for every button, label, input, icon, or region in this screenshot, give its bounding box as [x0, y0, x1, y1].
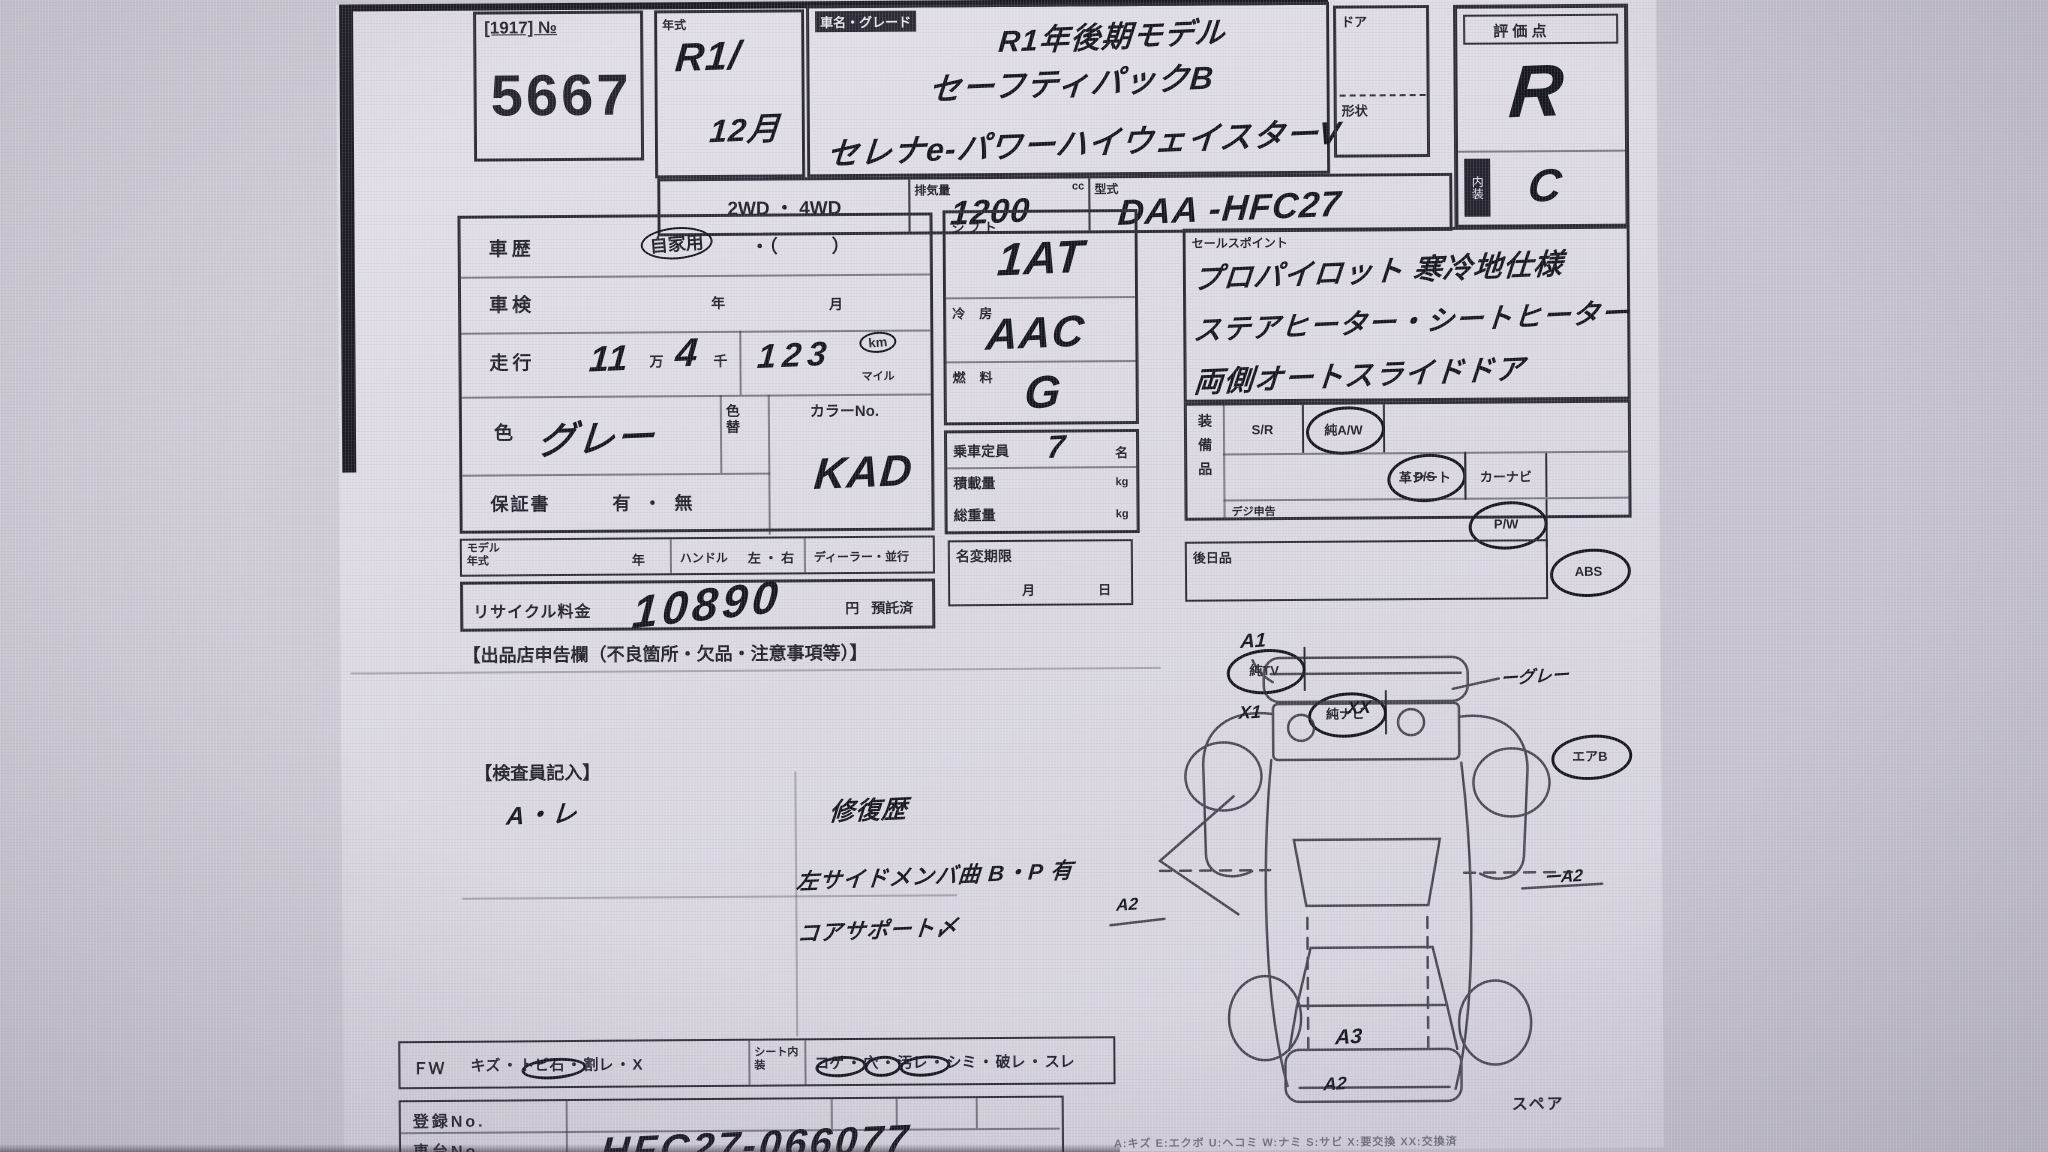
recycle-paid: 預託済	[871, 598, 913, 618]
sales-points-label: セールスポイント	[1192, 234, 1288, 252]
displacement-unit: cc	[1072, 180, 1084, 192]
damage-legend: A:キズ E:エクボ U:ヘコミ W:ナミ S:サビ X:要交換 XX:交換済	[1114, 1133, 1458, 1151]
color-value: グレー	[536, 405, 658, 465]
dealer-label: ディーラー・並行	[814, 548, 909, 566]
photo-bottom-shadow	[0, 1144, 1120, 1152]
damage-mark-xx: XX	[1346, 697, 1371, 719]
score-label: 評 価 点	[1493, 20, 1546, 41]
sales-point-line-2: ステアヒーター・シートヒーター	[1192, 291, 1632, 349]
transfer-month-unit: 月	[1022, 580, 1035, 599]
cell-divider	[976, 1098, 978, 1128]
load-unit: kg	[1115, 476, 1128, 488]
cell-divider	[739, 331, 741, 395]
shift-box: シフト 1AT 冷房 AAC 燃料 G	[942, 209, 1138, 425]
registration-label: 登録No.	[413, 1108, 486, 1133]
fw-item: 割レ	[583, 1057, 632, 1074]
seat-item: 汚レ	[897, 1054, 946, 1071]
gw-unit: kg	[1116, 508, 1129, 520]
cell-divider	[748, 1041, 750, 1085]
shift-value: 1AT	[995, 229, 1086, 287]
pax-unit: 名	[1115, 442, 1128, 461]
history-value: 自家用	[640, 225, 714, 262]
left-detail-block: 車歴 自家用 ・（ ） 車検 年 月 走行 11 万 4 千 123 km マイ…	[457, 212, 934, 533]
scan-edge-left	[339, 5, 356, 473]
color-change-label: 色替	[726, 403, 750, 435]
lot-box: [1917] № 5667	[473, 10, 644, 161]
door-label: ドア	[1341, 11, 1367, 30]
color-no-value: KAD	[812, 446, 915, 500]
inspector-note-1: 修復歴	[828, 789, 909, 828]
later-items-box: 後日品	[1185, 539, 1548, 602]
load-label: 積載量	[953, 473, 995, 493]
warranty-label: 保証書	[490, 490, 550, 516]
inspector-left-note: A・レ	[505, 794, 579, 833]
transfer-box: 名変期限 月 日	[948, 539, 1133, 606]
inspector-rule	[462, 894, 957, 899]
equipment-box: 装備品 S/R 純A/W P/S P/W ABS 純TV 純ナビ 革シート カー…	[1184, 400, 1632, 521]
model-year-unit: 年	[632, 549, 645, 568]
fw-row: ＦＷ キズトビ石割レX シート内装 コゲ穴汚レシミ破レスレ	[398, 1036, 1115, 1089]
warranty-options: 有 ・ 無	[612, 489, 696, 516]
gw-label: 総重量	[954, 505, 996, 525]
seat-item: シミ	[946, 1054, 995, 1071]
pax-value: 7	[1046, 428, 1068, 466]
mileage-label: 走行	[489, 348, 535, 375]
shape-label: 形状	[1342, 100, 1368, 119]
handle-label: ハンドル	[680, 549, 728, 566]
km-unit: km	[859, 330, 897, 354]
cell-divider	[720, 395, 723, 473]
mileage-number: 123	[756, 335, 834, 377]
later-items-label: 後日品	[1193, 547, 1232, 566]
score-label-strip: 評 価 点	[1463, 14, 1618, 45]
lot-number: 5667	[490, 62, 631, 130]
inspector-note-3: コアサポート〆	[796, 909, 960, 948]
displacement-label: 排気量	[914, 181, 950, 198]
cell-divider	[670, 539, 672, 573]
model-code-cell: 型式 DAA -HFC27	[1090, 176, 1450, 231]
row-divider	[947, 466, 1136, 469]
color-no-label: カラーNo.	[810, 400, 879, 421]
score-box: 評 価 点 R 内装 C	[1453, 4, 1630, 229]
interior-label: 内装	[1470, 176, 1484, 200]
pax-label: 乗車定員	[953, 441, 1009, 461]
seat-item: スレ	[1044, 1053, 1074, 1070]
damage-mark-x1: X1	[1238, 702, 1261, 724]
fw-item: キズ	[470, 1057, 519, 1074]
shift-label: シフト	[951, 217, 999, 236]
damage-mark-front-a2: A2	[1323, 1073, 1347, 1095]
shaken-month-unit: 月	[829, 294, 843, 314]
model-code-value: DAA -HFC27	[1116, 183, 1343, 234]
fuel-value: G	[1022, 364, 1063, 420]
cell-divider	[768, 395, 771, 535]
capacity-box: 乗車定員 7 名 積載量 kg 総重量 kg	[944, 429, 1140, 534]
row-divider	[461, 273, 930, 278]
fuel-label: 燃料	[953, 367, 1007, 386]
spare-label: スペア	[1512, 1090, 1565, 1114]
grade-line-2: セーフティパックB	[927, 53, 1216, 111]
row-divider	[462, 473, 770, 477]
recycle-value: 10890	[631, 569, 784, 639]
fw-label: ＦＷ	[412, 1055, 444, 1079]
cell-divider	[804, 1040, 806, 1084]
mileage-man: 11	[588, 337, 631, 381]
shaken-label: 車検	[489, 290, 535, 317]
seat-item: 破レ	[995, 1054, 1044, 1071]
row-divider	[462, 393, 931, 398]
model-code-label: 型式	[1094, 180, 1118, 197]
lot-tag: [1917] №	[484, 18, 557, 39]
car-damage-diagram: A1 X1 XX ーグレー A2 ーA2 A3 A2 スペア	[1100, 616, 1644, 1152]
recycle-label: リサイクル料金	[473, 598, 591, 623]
color-note-grey: ーグレー	[1500, 660, 1569, 689]
equip-cell: S/R	[1223, 405, 1304, 454]
sales-point-line-3: 両側オートスライドドア	[1192, 346, 1527, 402]
inspector-label: 【検査員記入】	[474, 759, 600, 786]
year-box: 年式 R1/ 12月	[654, 9, 805, 178]
equipment-label: 装備品	[1195, 413, 1216, 513]
row-divider	[947, 360, 1136, 363]
man-unit: 万	[649, 351, 663, 371]
equip-note: デジ申告	[1231, 503, 1275, 519]
fw-items: キズトビ石割レX	[470, 1054, 642, 1076]
seat-label: シート内装	[754, 1046, 800, 1073]
inspector-divider	[794, 771, 798, 1036]
ac-value: AAC	[984, 307, 1087, 361]
seat-item: 穴	[863, 1055, 897, 1072]
color-label: 色	[494, 418, 513, 445]
section-rule	[351, 667, 1161, 675]
grade-label: 車名・グレード	[815, 11, 916, 33]
equip-cell: 革シート	[1385, 454, 1466, 499]
shaken-year-unit: 年	[711, 293, 725, 313]
recycle-row: リサイクル料金 10890 円 預託済	[460, 578, 935, 631]
grade-line-3: セレナe-パワーハイウェイスターV	[825, 108, 1343, 175]
history-paren: ・（ ）	[751, 232, 850, 259]
sen-unit: 千	[713, 351, 727, 371]
interior-label-chip: 内装	[1464, 159, 1490, 217]
history-label: 車歴	[489, 234, 535, 261]
year-value-1: R1/	[673, 34, 742, 82]
score-value: R	[1506, 47, 1568, 134]
year-value-2: 12月	[708, 103, 783, 152]
transfer-day-unit: 日	[1098, 579, 1111, 598]
handle-options: 左 ・ 右	[748, 547, 794, 566]
transfer-label: 名変期限	[956, 546, 1012, 566]
equip-cell: カーナビ	[1466, 453, 1547, 498]
interior-value: C	[1526, 157, 1565, 212]
damage-mark-a1: A1	[1240, 629, 1267, 653]
sales-points-box: セールスポイント プロパイロット 寒冷地仕様 ステアヒーター・シートヒーター 両…	[1183, 226, 1631, 403]
auction-sheet: [1917] № 5667 年式 R1/ 12月 車名・グレード R1年後期モデ…	[336, 0, 1664, 1152]
model-year-label: モデル年式	[467, 542, 509, 569]
year-label: 年式	[662, 16, 686, 33]
door-shape-divider	[1340, 94, 1426, 97]
damage-mark-right-a2: ーA2	[1543, 861, 1583, 888]
grade-box: 車名・グレード R1年後期モデル セーフティパックB セレナe-パワーハイウェイ…	[806, 2, 1330, 178]
score-divider	[1458, 150, 1625, 153]
monitor-photo: [1917] № 5667 年式 R1/ 12月 車名・グレード R1年後期モデ…	[0, 0, 2048, 1152]
seat-items: コゲ穴汚レシミ破レスレ	[814, 1050, 1074, 1073]
inspector-note-2: 左サイドメンバ曲 B・P 有	[795, 853, 1075, 897]
row-divider	[946, 296, 1135, 299]
declaration-title: 【出品店申告欄（不良箇所・欠品・注意事項等）】	[462, 639, 867, 668]
equip-cell: 純A/W	[1304, 404, 1385, 453]
mile-unit: マイル	[862, 368, 895, 384]
damage-mark-left-a2: A2	[1116, 894, 1139, 915]
equip-cell: ABS	[1548, 547, 1629, 596]
door-shape-box: ドア 形状	[1333, 5, 1430, 158]
seat-item: コゲ	[814, 1055, 863, 1072]
fw-item: トビ石	[519, 1057, 583, 1074]
cell-divider	[566, 1101, 568, 1131]
mileage-sen: 4	[674, 331, 701, 377]
cell-divider	[804, 538, 806, 572]
recycle-unit: 円	[845, 598, 859, 618]
damage-mark-a3: A3	[1335, 1025, 1363, 1051]
model-year-row: モデル年式 年 ハンドル 左 ・ 右 ディーラー・並行	[460, 535, 935, 576]
fw-item: X	[632, 1057, 642, 1074]
